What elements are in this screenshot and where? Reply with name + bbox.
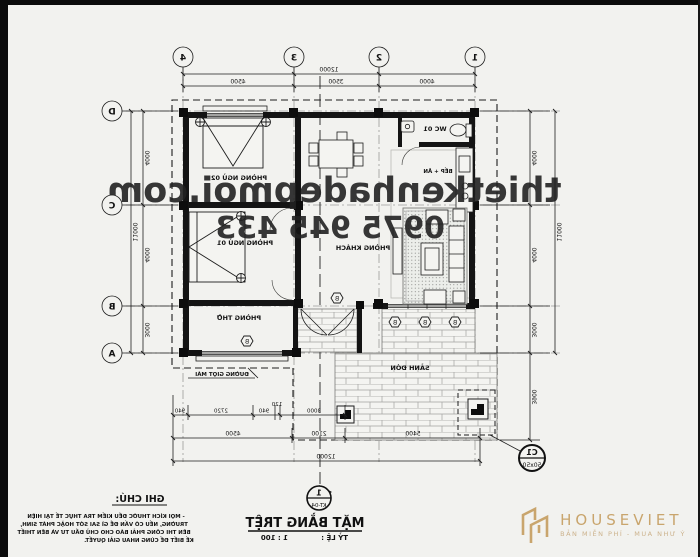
dim-b2-3: 4500	[225, 431, 240, 438]
notes-block: GHI CHÚ: - MỌI KÍCH THƯỚC ĐỀU KIỂM TRA T…	[17, 493, 194, 544]
dim-b1-1: 3000	[307, 409, 321, 415]
logo-tagline: BẢN MIỄN PHÍ - MUA NHƯ Ý	[560, 531, 686, 538]
notes-line-1: - MỌI KÍCH THƯỚC ĐỀU KIỂM TRA THỰC TẾ TẠ…	[27, 511, 185, 520]
roofline-label: ĐƯỜNG GIỌT MÁI	[195, 371, 249, 378]
paving	[297, 309, 497, 440]
label-wc: WC 01	[423, 125, 447, 133]
letter-grid	[102, 101, 178, 363]
logo-name: HOUSEVIET	[560, 512, 686, 529]
scale-label: TỶ LỆ :	[321, 532, 348, 542]
dim-b1-3: 940	[258, 409, 269, 415]
dim-left-overall: 11000	[555, 222, 562, 241]
dim-left-2: 4000	[530, 247, 537, 262]
dim-right-3: 3000	[143, 322, 150, 337]
dim-top-2: 3500	[328, 79, 343, 86]
row-bubble-b: B	[108, 303, 115, 313]
detail-bubble-bottom: 50x50	[522, 462, 541, 469]
drawing-title: MẶT BẰNG TRỆT	[245, 514, 364, 531]
dim-bottom-overall: 12000	[316, 454, 335, 461]
dim-top-1: 4000	[419, 79, 434, 86]
svg-text:B: B	[393, 319, 397, 326]
watermark: thietkenhadepmoi.com 0975 945 433	[107, 171, 562, 246]
notes-line-2: TRƯỜNG, NẾU CÓ VẤN ĐỀ GÌ SAI SÓT HOẶC PH…	[20, 519, 188, 528]
houseviet-logo: HOUSEVIET BẢN MIỄN PHÍ - MUA NHƯ Ý	[519, 505, 686, 545]
svg-text:B: B	[453, 319, 457, 326]
dim-left-4: 3900	[530, 389, 537, 404]
dim-top-3: 4500	[230, 79, 245, 86]
row-bubble-a: A	[108, 350, 115, 360]
mirrored-plan-container: C1 50x50 B B B B B WC 01 BẾP + ĂN PHÒNG …	[0, 0, 700, 557]
section-bubble-top: 1	[316, 489, 322, 498]
top-border	[0, 0, 700, 5]
svg-text:B: B	[423, 319, 427, 326]
dim-right-1: 4000	[143, 150, 150, 165]
dim-b2-2: 2100	[311, 431, 326, 438]
dim-left-3: 3000	[530, 322, 537, 337]
top-grid-text: 1 2 3 4 12000 4000 3500 4500	[180, 54, 478, 86]
col-bubble-1: 1	[472, 54, 478, 64]
notes-line-3: BÊN THI CÔNG PHẢI BÁO CHO CHỦ ĐẦU TƯ VÀ …	[17, 527, 190, 536]
notes-line-4: KẾ BIẾT ĐỂ CÙNG NHAU GIẢI QUYẾT.	[84, 536, 194, 544]
scale-value: 1 : 100	[261, 534, 288, 542]
dim-b1-4: 2720	[214, 409, 228, 415]
section-bubble-bottom: KT-04	[311, 503, 327, 509]
title-block: 1 KT-04 MẶT BẰNG TRỆT TỶ LỆ : 1 : 100	[245, 485, 364, 542]
dim-b1-5: 940	[174, 409, 185, 415]
notes-heading: GHI CHÚ:	[115, 493, 164, 505]
col-bubble-4: 4	[180, 54, 186, 64]
dim-right-2: 4000	[143, 247, 150, 262]
col-bubble-2: 2	[376, 54, 382, 64]
dim-right-overall: 11000	[131, 222, 138, 241]
svg-text:B: B	[335, 295, 339, 302]
detail-bubble-top: C1	[526, 448, 538, 457]
row-bubble-c: C	[108, 202, 115, 212]
label-worship: PHÒNG THỜ	[217, 313, 262, 322]
dim-top-overall: 12000	[319, 67, 338, 74]
svg-text:B: B	[245, 338, 249, 345]
label-terrace: SẢNH ĐÓN	[390, 362, 429, 372]
houseviet-logo-icon	[519, 505, 553, 545]
floorplan-drawing: C1 50x50 B B B B B WC 01 BẾP + ĂN PHÒNG …	[0, 0, 700, 557]
left-border	[0, 0, 8, 557]
dim-b2-1: 5400	[405, 431, 420, 438]
roofline-callout: ĐƯỜNG GIỌT MÁI	[188, 368, 258, 378]
dim-left-1: 4000	[530, 150, 537, 165]
col-bubble-3: 3	[291, 54, 297, 64]
bed-02	[196, 118, 271, 169]
floorplan-page: C1 50x50 B B B B B WC 01 BẾP + ĂN PHÒNG …	[0, 0, 700, 557]
letter-grid-text: D C B A 4000 4000 3000 11000	[108, 108, 150, 360]
row-bubble-d: D	[108, 108, 115, 118]
dim-b1-2: 120	[271, 402, 282, 408]
watermark-line2: 0975 945 433	[215, 211, 445, 246]
